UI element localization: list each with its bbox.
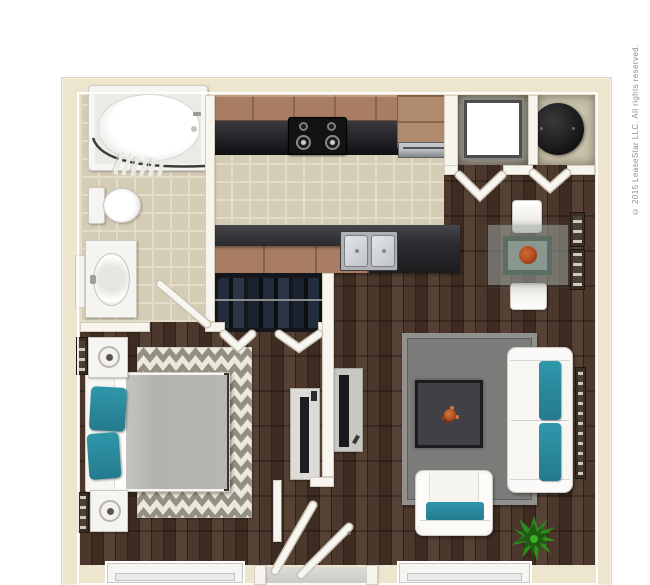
- living-tv: [339, 375, 349, 447]
- sofa-arm-top: [510, 349, 570, 361]
- dining-table-glass: [488, 225, 568, 285]
- entry-jamb-right: [366, 565, 378, 585]
- range-stove: [288, 117, 347, 155]
- copyright-text: © 2015 LeaseStar LLC. All rights reserve…: [631, 6, 645, 216]
- wall-closet-bottom-left: [444, 165, 458, 175]
- wall-bathroom-right: [205, 95, 215, 322]
- dining-wall-frame-top: [570, 212, 585, 247]
- entry-jamb-left: [254, 565, 266, 585]
- wall-closet-bottom-right: [567, 165, 595, 175]
- burner-small-left: [299, 122, 308, 131]
- potted-plant: [511, 515, 557, 563]
- living-window: [397, 561, 532, 585]
- frame-content: [80, 496, 86, 529]
- water-heater: [538, 103, 584, 155]
- burner-large-right: [325, 135, 340, 150]
- sofa-cushion-teal-bottom: [539, 423, 561, 481]
- wall-closet-left: [444, 95, 458, 175]
- dining-wall-frame-bottom: [570, 249, 585, 290]
- window-glass: [115, 573, 235, 581]
- sink-bowl-left: [344, 235, 368, 267]
- console-speaker: [311, 391, 317, 401]
- burner-large-left: [296, 135, 311, 150]
- bathroom-mirror: [75, 255, 85, 308]
- washer-unit: [464, 100, 522, 158]
- dishwasher-handle: [403, 147, 445, 149]
- bedroom-wall-art-top: [76, 337, 88, 375]
- dishwasher: [398, 142, 450, 158]
- floor-plan-image: © 2015 LeaseStar LLC. All rights reserve…: [0, 0, 650, 585]
- sink-bowl-right: [371, 235, 395, 267]
- frame-content: [578, 371, 583, 475]
- sofa-seat-seam: [511, 420, 569, 421]
- kitchen-sink: [340, 231, 398, 271]
- armchair: [415, 470, 493, 536]
- coffee-table: [415, 380, 483, 448]
- wall-closet-bottom-mid: [503, 165, 533, 175]
- tub-drain: [191, 126, 197, 132]
- lamp: [99, 500, 121, 522]
- coffee-table-centerpiece: [444, 409, 456, 421]
- hanging-clothes: [218, 278, 324, 328]
- sink-vanity: [85, 240, 137, 318]
- bedroom-tv-console: [290, 388, 320, 480]
- armchair-cushion-teal: [426, 502, 484, 521]
- wall-bathroom-bottom: [80, 322, 150, 332]
- wall-bedroom-living-divider: [322, 273, 334, 477]
- armchair-back: [420, 520, 490, 533]
- toilet-bowl: [103, 188, 141, 223]
- bed-duvet: [124, 375, 227, 489]
- frame-content: [573, 216, 582, 243]
- living-tv-console: [330, 368, 363, 452]
- bedroom-window: [105, 561, 245, 585]
- dining-chair-bottom: [510, 283, 547, 310]
- sink-faucet: [90, 275, 96, 284]
- frame-content: [573, 253, 582, 286]
- entry-threshold: [266, 567, 366, 585]
- window-glass: [407, 573, 522, 581]
- wall-closet-divider: [528, 95, 538, 165]
- living-wall-frame: [575, 367, 586, 479]
- burner-small-right: [327, 122, 336, 131]
- shower-curtain: [89, 130, 209, 176]
- bed: [85, 372, 230, 492]
- tv-remote: [352, 435, 360, 445]
- wall-entry-doorframe: [273, 480, 282, 542]
- frame-content: [79, 341, 85, 371]
- bedroom-tv: [300, 397, 309, 473]
- washer-closet: [458, 95, 528, 165]
- closet-rod: [213, 299, 330, 301]
- pillow-teal-top: [89, 386, 127, 432]
- wall-bedroom-top-mid: [205, 322, 225, 332]
- pillow-teal-bottom: [86, 432, 121, 480]
- nightstand-top: [88, 337, 128, 378]
- nightstand-bottom: [90, 490, 128, 532]
- wall-divider-jog: [310, 477, 334, 487]
- wardrobe-closet: [213, 273, 330, 332]
- lamp: [98, 346, 120, 368]
- bathtub: [88, 85, 208, 171]
- tub-faucet: [193, 112, 201, 116]
- apartment-plan: [62, 78, 611, 585]
- bedroom-wall-art-bottom: [77, 492, 89, 533]
- dining-centerpiece: [519, 246, 537, 264]
- sofa: [507, 347, 573, 493]
- sofa-arm-bottom: [510, 479, 570, 491]
- sink-basin: [93, 253, 130, 306]
- water-heater-closet: [538, 95, 595, 165]
- sofa-cushion-teal-top: [539, 361, 561, 420]
